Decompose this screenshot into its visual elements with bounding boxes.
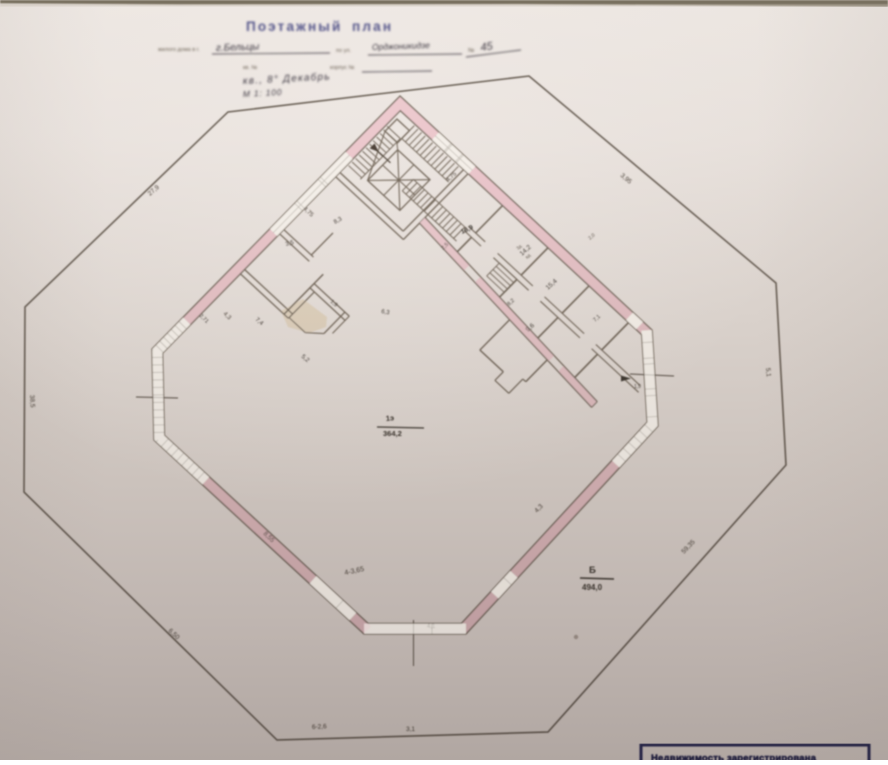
svg-text:по ул.: по ул.	[336, 48, 351, 54]
svg-text:Поэтажный: Поэтажный	[246, 19, 343, 34]
svg-text:3,1: 3,1	[406, 726, 415, 733]
svg-text:38,5: 38,5	[28, 395, 36, 408]
svg-text:план: план	[352, 19, 393, 34]
svg-text:6-2,6: 6-2,6	[312, 723, 328, 731]
svg-text:364,2: 364,2	[383, 429, 402, 438]
svg-text:Недвижимость зарегистрирована: Недвижимость зарегистрирована	[651, 753, 817, 760]
svg-text:1э: 1э	[385, 413, 394, 423]
svg-text:494,0: 494,0	[582, 583, 603, 592]
svg-text:корпус №: корпус №	[330, 65, 355, 71]
svg-text:1,9: 1,9	[634, 384, 641, 390]
svg-text:г.Бельцы: г.Бельцы	[216, 41, 260, 54]
svg-text:Орджоникидзе: Орджоникидзе	[372, 40, 431, 52]
svg-text:5,1: 5,1	[764, 368, 772, 378]
svg-text:№: №	[468, 47, 474, 54]
svg-text:Б: Б	[589, 565, 596, 576]
svg-text:кв. №: кв. №	[243, 65, 257, 71]
svg-text:жилого дома в г.: жилого дома в г.	[158, 47, 200, 53]
svg-text:М 1: 100: М 1: 100	[243, 87, 283, 99]
